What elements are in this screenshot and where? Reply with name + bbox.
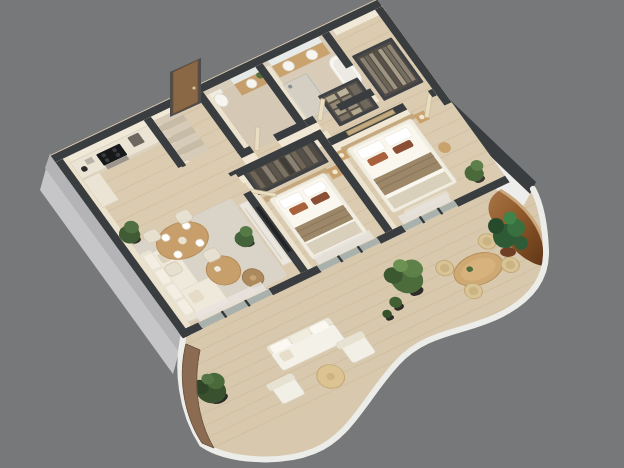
interior-door-open	[255, 127, 260, 151]
door-handle	[192, 86, 195, 89]
scene-canvas	[0, 0, 624, 468]
floorplan-render	[0, 0, 624, 468]
